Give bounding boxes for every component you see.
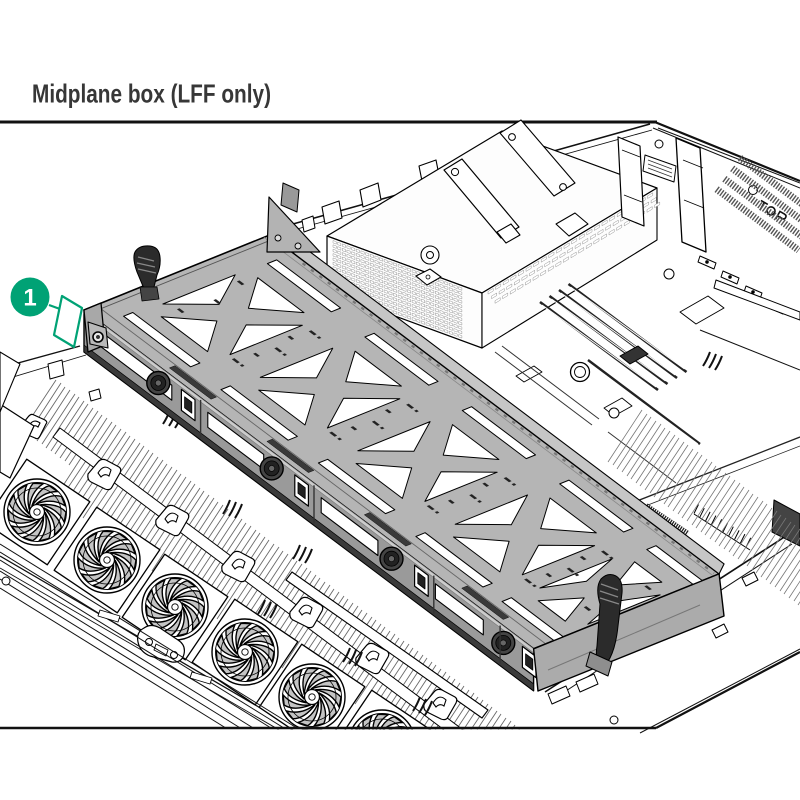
svg-text:Midplane box (LFF only): Midplane box (LFF only) bbox=[32, 79, 271, 109]
svg-text:1: 1 bbox=[23, 285, 36, 312]
